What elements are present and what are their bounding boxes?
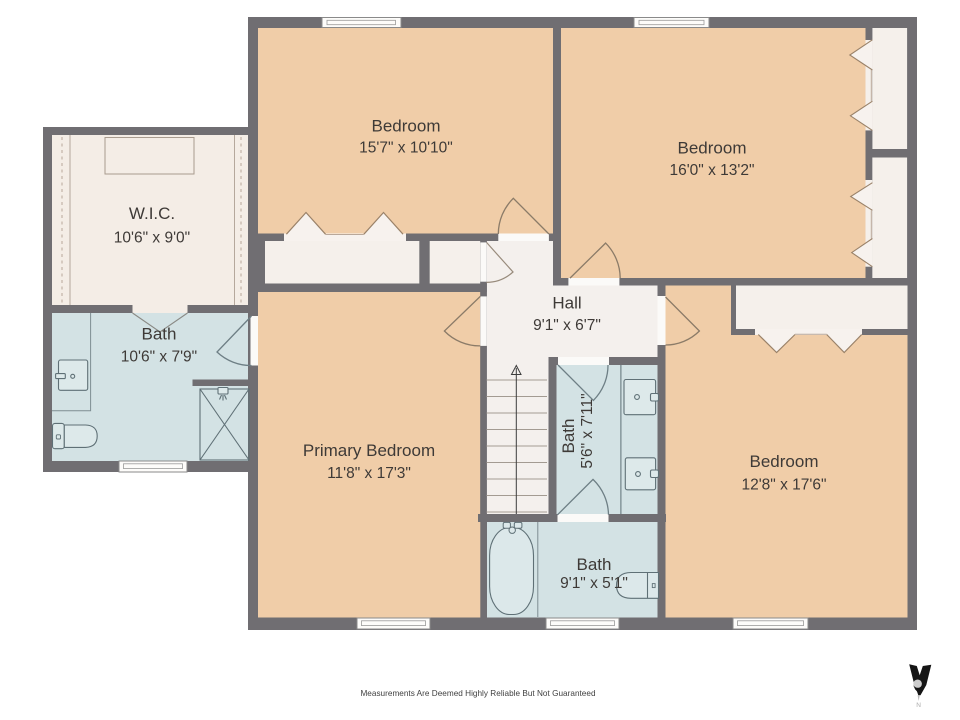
svg-text:Bath: Bath xyxy=(559,419,578,454)
svg-text:12'8" x 17'6": 12'8" x 17'6" xyxy=(741,477,826,494)
svg-text:Hall: Hall xyxy=(552,294,581,313)
svg-text:W.I.C.: W.I.C. xyxy=(129,204,175,223)
svg-text:Bath: Bath xyxy=(577,555,612,574)
svg-text:10'6" x 9'0": 10'6" x 9'0" xyxy=(114,230,190,247)
svg-text:5'6" x 7'11": 5'6" x 7'11" xyxy=(579,393,596,468)
svg-text:Bedroom: Bedroom xyxy=(372,117,441,136)
svg-text:Bedroom: Bedroom xyxy=(678,139,747,158)
svg-text:9'1" x 6'7": 9'1" x 6'7" xyxy=(533,317,601,334)
svg-text:10'6" x 7'9": 10'6" x 7'9" xyxy=(121,349,197,366)
svg-text:16'0" x 13'2": 16'0" x 13'2" xyxy=(669,162,754,179)
svg-text:Bedroom: Bedroom xyxy=(750,452,819,471)
svg-text:15'7" x 10'10": 15'7" x 10'10" xyxy=(359,140,453,157)
svg-text:11'8" x 17'3": 11'8" x 17'3" xyxy=(327,465,411,482)
svg-text:Bath: Bath xyxy=(142,325,177,344)
svg-text:Measurements Are Deemed Highly: Measurements Are Deemed Highly Reliable … xyxy=(360,689,596,698)
svg-text:Primary Bedroom: Primary Bedroom xyxy=(303,441,435,460)
svg-text:9'1" x 5'1": 9'1" x 5'1" xyxy=(560,575,628,592)
svg-text:N: N xyxy=(916,702,921,709)
